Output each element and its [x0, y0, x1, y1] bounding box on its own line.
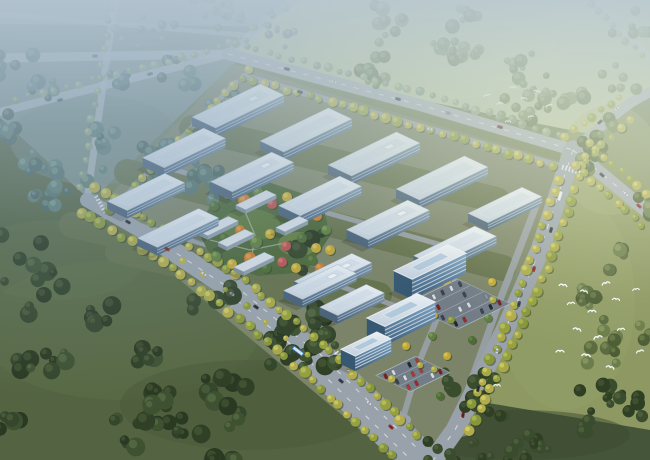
atmosphere-haze [0, 0, 650, 460]
scene-svg [0, 0, 650, 460]
haze-top-band [0, 0, 650, 235]
industrial-park-aerial-rendering [0, 0, 650, 460]
